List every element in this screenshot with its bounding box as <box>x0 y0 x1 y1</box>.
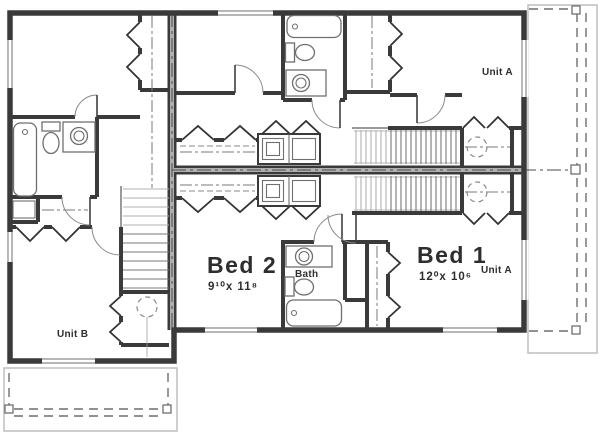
toilet-icon <box>296 45 315 61</box>
stairs-central-lower <box>354 176 460 211</box>
bifold-door-icon <box>224 198 256 212</box>
linen-shelf-icon <box>13 201 35 218</box>
bifold-door-icon <box>388 296 400 318</box>
bifold-door-icon <box>262 206 290 219</box>
floor-plan-drawing: Unit A Unit A Unit B Bed 2 9¹⁰x 11⁸ Bed … <box>0 0 600 437</box>
bifold-door-icon <box>127 22 140 48</box>
deck-post-icon <box>572 326 580 334</box>
bifold-door-icon <box>52 227 80 241</box>
bifold-door-icon <box>182 126 214 140</box>
sink-icon <box>296 248 313 265</box>
bathroom-unit-a <box>285 246 342 326</box>
toilet-icon <box>43 133 59 154</box>
stairs-unit-b <box>121 186 169 288</box>
toilet-tank-icon <box>42 122 60 131</box>
bifold-door-icon <box>292 121 320 134</box>
bifold-door-icon <box>388 252 400 274</box>
bifold-door-icon <box>390 22 402 46</box>
deck-post-icon <box>163 405 171 413</box>
bed-2-dimensions: 9¹⁰x 11⁸ <box>208 280 258 293</box>
bifold-door-icon <box>463 213 485 224</box>
bifold-door-icon <box>127 54 140 80</box>
deck-post-icon <box>571 165 580 174</box>
bed-1-dimensions: 12⁰x 10⁶ <box>419 270 472 283</box>
deck-outline-right <box>528 5 597 353</box>
bathroom-unit-b <box>13 122 95 218</box>
bath-label: Bath <box>295 269 318 280</box>
sink-icon <box>71 128 88 145</box>
deck-outline-bottom-left <box>4 368 177 431</box>
floor-plan-page: Unit A Unit A Unit B Bed 2 9¹⁰x 11⁸ Bed … <box>0 0 600 437</box>
bifold-door-icon <box>262 121 290 134</box>
bathtub-icon <box>287 16 341 38</box>
deck-post-icon <box>5 405 13 413</box>
bed-2-label: Bed 2 <box>207 252 277 278</box>
water-heater-icon <box>137 297 157 317</box>
unit-a-label-top: Unit A <box>482 67 513 78</box>
bifold-door-icon <box>292 206 320 219</box>
bathroom-top <box>286 16 342 97</box>
sink-icon <box>293 75 310 92</box>
bifold-door-icon <box>487 213 509 224</box>
bifold-door-icon <box>110 296 121 316</box>
toilet-icon <box>295 279 314 295</box>
bifold-door-icon <box>487 117 509 128</box>
bifold-door-icon <box>16 227 44 241</box>
bed-1-label: Bed 1 <box>417 242 487 268</box>
toilet-tank-icon <box>286 43 295 62</box>
bifold-door-icon <box>182 198 214 212</box>
deck-post-icon <box>572 6 580 14</box>
stairs-central-upper <box>352 128 460 164</box>
bathtub-icon <box>287 300 342 326</box>
bifold-door-icon <box>110 322 121 342</box>
bifold-door-icon <box>390 56 402 80</box>
bifold-door-icon <box>463 117 485 128</box>
bathtub-icon <box>14 123 37 196</box>
bifold-door-icon <box>224 126 256 140</box>
toilet-tank-icon <box>285 277 294 296</box>
unit-b-label: Unit B <box>57 329 88 340</box>
